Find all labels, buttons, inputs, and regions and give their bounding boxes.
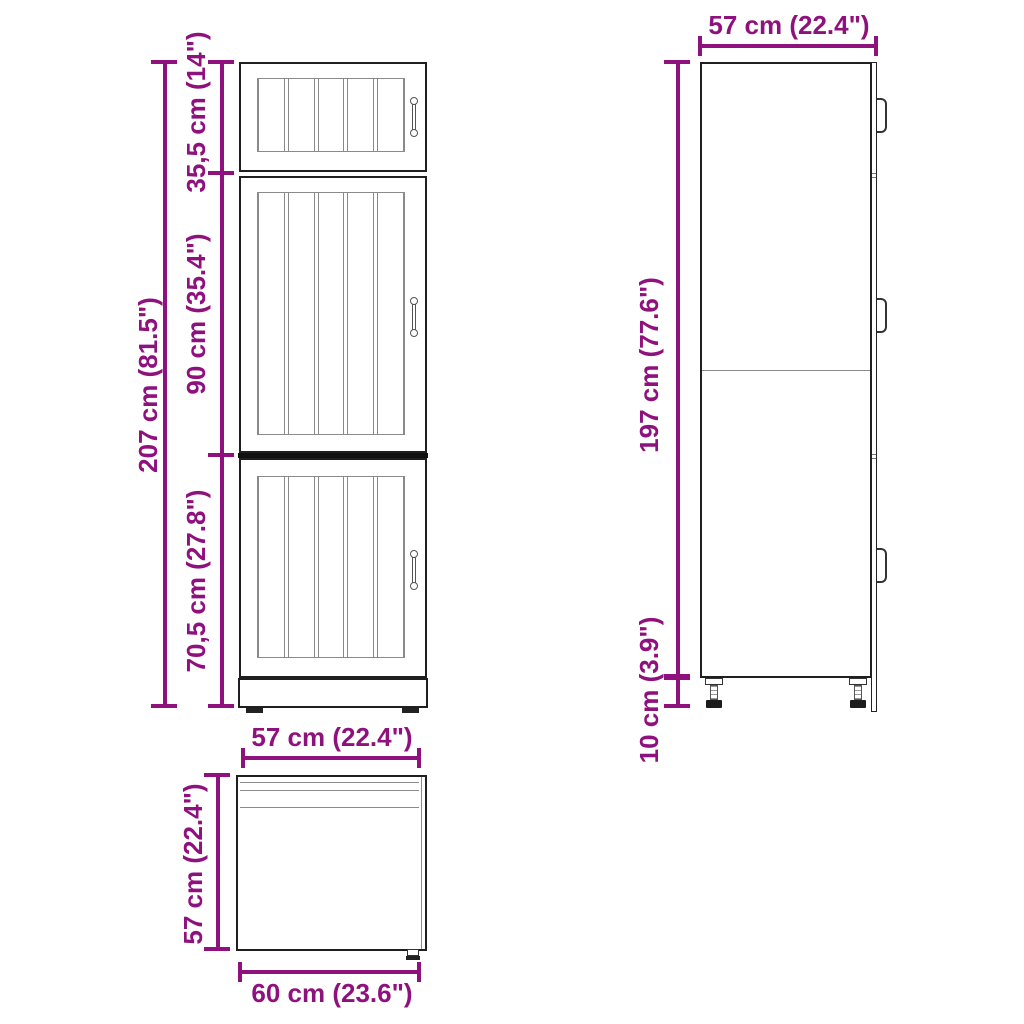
dim-tick (151, 704, 177, 708)
dim-tick (238, 962, 242, 982)
front-total-height-label: 207 cm (81.5") (135, 297, 161, 473)
side-width-dimline (700, 44, 878, 48)
dim-tick (664, 704, 690, 708)
top-width-label: 57 cm (22.4") (251, 724, 412, 750)
door-slat (288, 477, 315, 657)
handle-screw-icon (410, 582, 418, 590)
door-slat (347, 193, 374, 434)
door-handle (410, 297, 418, 337)
side-body-height-dimline (676, 62, 680, 678)
front-middle-section-label: 90 cm (35.4") (183, 233, 209, 394)
door-slat (258, 477, 285, 657)
front-middle-door (239, 176, 427, 453)
dim-tick (208, 171, 234, 175)
door-slat (377, 477, 404, 657)
door-handle (410, 97, 418, 137)
top-depth-dimline (216, 775, 220, 951)
leg-plate (705, 678, 723, 685)
handle-bar (412, 557, 416, 585)
cabinet-foot (246, 708, 263, 713)
front-total-height-dimline (163, 62, 167, 708)
leg-shaft (854, 685, 862, 700)
dim-tick (204, 773, 230, 777)
top-total-depth-label: 60 cm (23.6") (251, 980, 412, 1006)
dim-tick (208, 453, 234, 457)
top-total-depth-dimline (240, 970, 421, 974)
cabinet-top-view (236, 775, 427, 951)
door-slat (347, 477, 374, 657)
door-slat (258, 79, 285, 151)
cabinet-dimension-diagram: 207 cm (81.5") 35,5 cm (14") 90 cm (35.4… (0, 0, 1024, 1024)
leg-foot (706, 700, 722, 708)
handle-screw-icon (410, 129, 418, 137)
front-bottom-door (239, 458, 427, 678)
door-slat (318, 477, 345, 657)
door-slat (258, 193, 285, 434)
side-panel (700, 62, 872, 678)
dim-tick (417, 962, 421, 982)
door-slat (318, 193, 345, 434)
front-sections-dimline (220, 62, 224, 708)
cabinet-side-view (700, 62, 890, 713)
door-handle-side (877, 298, 887, 333)
dim-tick (874, 36, 878, 56)
side-width-label: 57 cm (22.4") (708, 12, 869, 38)
door-handle-side (877, 98, 887, 133)
dim-tick (208, 704, 234, 708)
door-slat (377, 79, 404, 151)
side-leg-height-label: 10 cm (3.9") (636, 617, 662, 764)
leg-shaft (710, 685, 718, 700)
leg-foot (406, 956, 420, 960)
dim-tick (151, 60, 177, 64)
door-handle (410, 550, 418, 590)
handle-bar (412, 304, 416, 332)
top-width-dimline (243, 756, 421, 760)
adjustable-leg (849, 678, 867, 710)
top-view-frame-line (240, 807, 419, 808)
door-slat (318, 79, 345, 151)
door-slat-panel (257, 476, 405, 658)
top-view-door-line (240, 790, 419, 791)
top-view-side-edge-line (421, 777, 422, 949)
cabinet-front-view (239, 62, 427, 713)
dim-tick (204, 947, 230, 951)
top-depth-label: 57 cm (22.4") (180, 783, 206, 944)
adjustable-leg (705, 678, 723, 710)
door-slat (347, 79, 374, 151)
door-slat (288, 79, 315, 151)
handle-bar (412, 104, 416, 132)
door-slat (288, 193, 315, 434)
front-bottom-section-label: 70,5 cm (27.8") (183, 490, 209, 673)
door-handle-side (877, 548, 887, 583)
dim-tick (664, 60, 690, 64)
side-body-height-label: 197 cm (77.6") (636, 277, 662, 453)
cabinet-plinth (238, 678, 428, 708)
door-slat-panel (257, 78, 405, 152)
dim-tick (417, 748, 421, 768)
door-slat (377, 193, 404, 434)
top-view-front-edge-line (240, 782, 419, 783)
door-slat-panel (257, 192, 405, 435)
door-gap-notch (872, 454, 876, 459)
dim-tick (698, 36, 702, 56)
handle-screw-icon (410, 329, 418, 337)
leg-glimpse (407, 949, 419, 956)
dim-tick (241, 748, 245, 768)
door-gap-notch (872, 173, 876, 178)
leg-foot (850, 700, 866, 708)
side-panel-joint-line (702, 370, 870, 371)
cabinet-foot (402, 708, 419, 713)
dim-tick (208, 60, 234, 64)
front-top-section-label: 35,5 cm (14") (183, 31, 209, 192)
leg-plate (849, 678, 867, 685)
door-edge-profile (871, 62, 877, 712)
front-top-door (239, 62, 427, 172)
dim-tick (664, 676, 690, 680)
